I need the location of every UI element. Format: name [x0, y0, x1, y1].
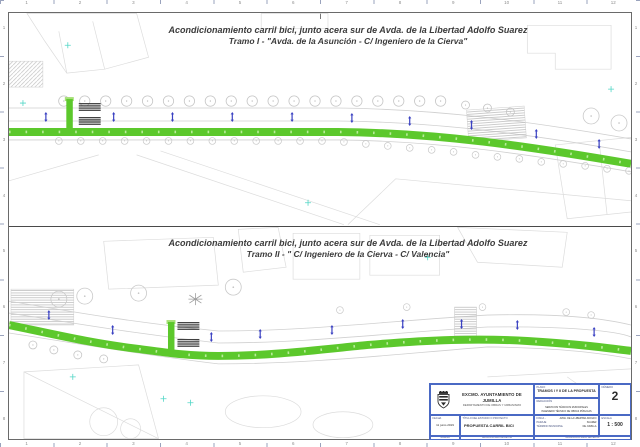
fecha-value: 11 junio 2019	[431, 423, 459, 427]
bike-lane	[9, 325, 631, 356]
ruler-numbers-top: 123456789101112	[0, 0, 640, 6]
survey-cross-icons	[70, 254, 431, 406]
fecha-label: FECHA	[431, 416, 459, 420]
tree-row-top	[59, 96, 627, 131]
panel-tramo-2: Acondicionamiento carril bici, junto ace…	[9, 226, 631, 440]
title-block-organization: EXCMO. AYUNTAMIENTO DE JUMILLA DEPARTAME…	[430, 384, 534, 415]
pedestrian-crossing	[177, 322, 199, 330]
ruler-numbers-bottom: 123456789101112	[0, 441, 640, 447]
title-block-fecha: FECHA 11 junio 2019	[430, 415, 460, 436]
title-block-finca: FINCA - PARAJE AVDA. DE LA LIBERTAD ADOL…	[534, 415, 599, 436]
title-block: EXCMO. AYUNTAMIENTO DE JUMILLA DEPARTAME…	[429, 383, 631, 440]
organization-department: DEPARTAMENTO DE OBRAS Y URBANISMO	[454, 403, 530, 407]
ruler-numbers-left: 12345678	[1, 0, 7, 447]
pedestrian-crossing	[79, 103, 101, 111]
tree-row-top	[51, 279, 595, 318]
curb-lines	[9, 301, 631, 364]
ruler-numbers-right: 12345678	[633, 0, 639, 447]
escala-value: 1 : 500	[600, 422, 630, 429]
pedestrian-crossing	[177, 339, 199, 347]
title-block-redaccion: REDACCIÓN SERVICIOS TÉCNICOS MUNICIPALES…	[534, 398, 599, 415]
redaccion-line2: INGENIERO TÉCNICO DE OBRAS PÚBLICAS	[535, 410, 598, 413]
sheet-number: 2	[600, 389, 630, 403]
title-block-strip-center: ANULA A PLANO DE FECHA	[460, 436, 534, 440]
organization-name: EXCMO. AYUNTAMIENTO DE JUMILLA	[454, 392, 530, 403]
title-block-titulo: TÍTULO DEL ESTUDIO O PROYECTO PROPUESTA …	[460, 415, 534, 436]
redaccion-label: REDACCIÓN	[535, 399, 598, 403]
title-block-strip-right: MODIFICA A PLANO DE FECHA	[534, 436, 631, 440]
bike-lane-connector	[65, 97, 74, 133]
drawing-frame: Acondicionamiento carril bici, junto ace…	[8, 12, 632, 440]
title-block-plano: PLANO TRAMOS I Y II DE LA PROPUESTA	[534, 384, 599, 398]
palm-tree-icon	[188, 293, 202, 305]
termino-label: TÉRMINO MUNICIPAL	[537, 425, 564, 429]
drawing-sheet: 123456789101112 123456789101112 12345678…	[0, 0, 640, 447]
title-block-escala: ESCALA 1 : 500	[599, 415, 631, 436]
parking-area-hatch	[466, 106, 526, 142]
parcel-outlines	[9, 13, 631, 224]
finca-value: AVDA. DE LA LIBERTAD ADOLFO SUAREZ	[554, 417, 596, 424]
plan-drawing-tramo-1	[9, 13, 631, 226]
termino-value: DE JUMILLA	[583, 425, 597, 429]
jumilla-coat-of-arms-icon	[436, 391, 451, 409]
titulo-value: PROPUESTA CARRIL BICI	[461, 420, 533, 428]
tree-row-bottom	[55, 138, 631, 175]
finca-label: FINCA - PARAJE	[537, 417, 555, 424]
title-block-numero: NÚMERO 2	[599, 384, 631, 415]
title-block-strip-left: JUMILLA	[430, 436, 460, 440]
escala-label: ESCALA	[600, 416, 630, 420]
plano-value: TRAMOS I Y II DE LA PROPUESTA	[535, 389, 598, 394]
panel-tramo-1: Acondicionamiento carril bici, junto ace…	[9, 13, 631, 226]
stairs-hatch	[9, 61, 43, 87]
